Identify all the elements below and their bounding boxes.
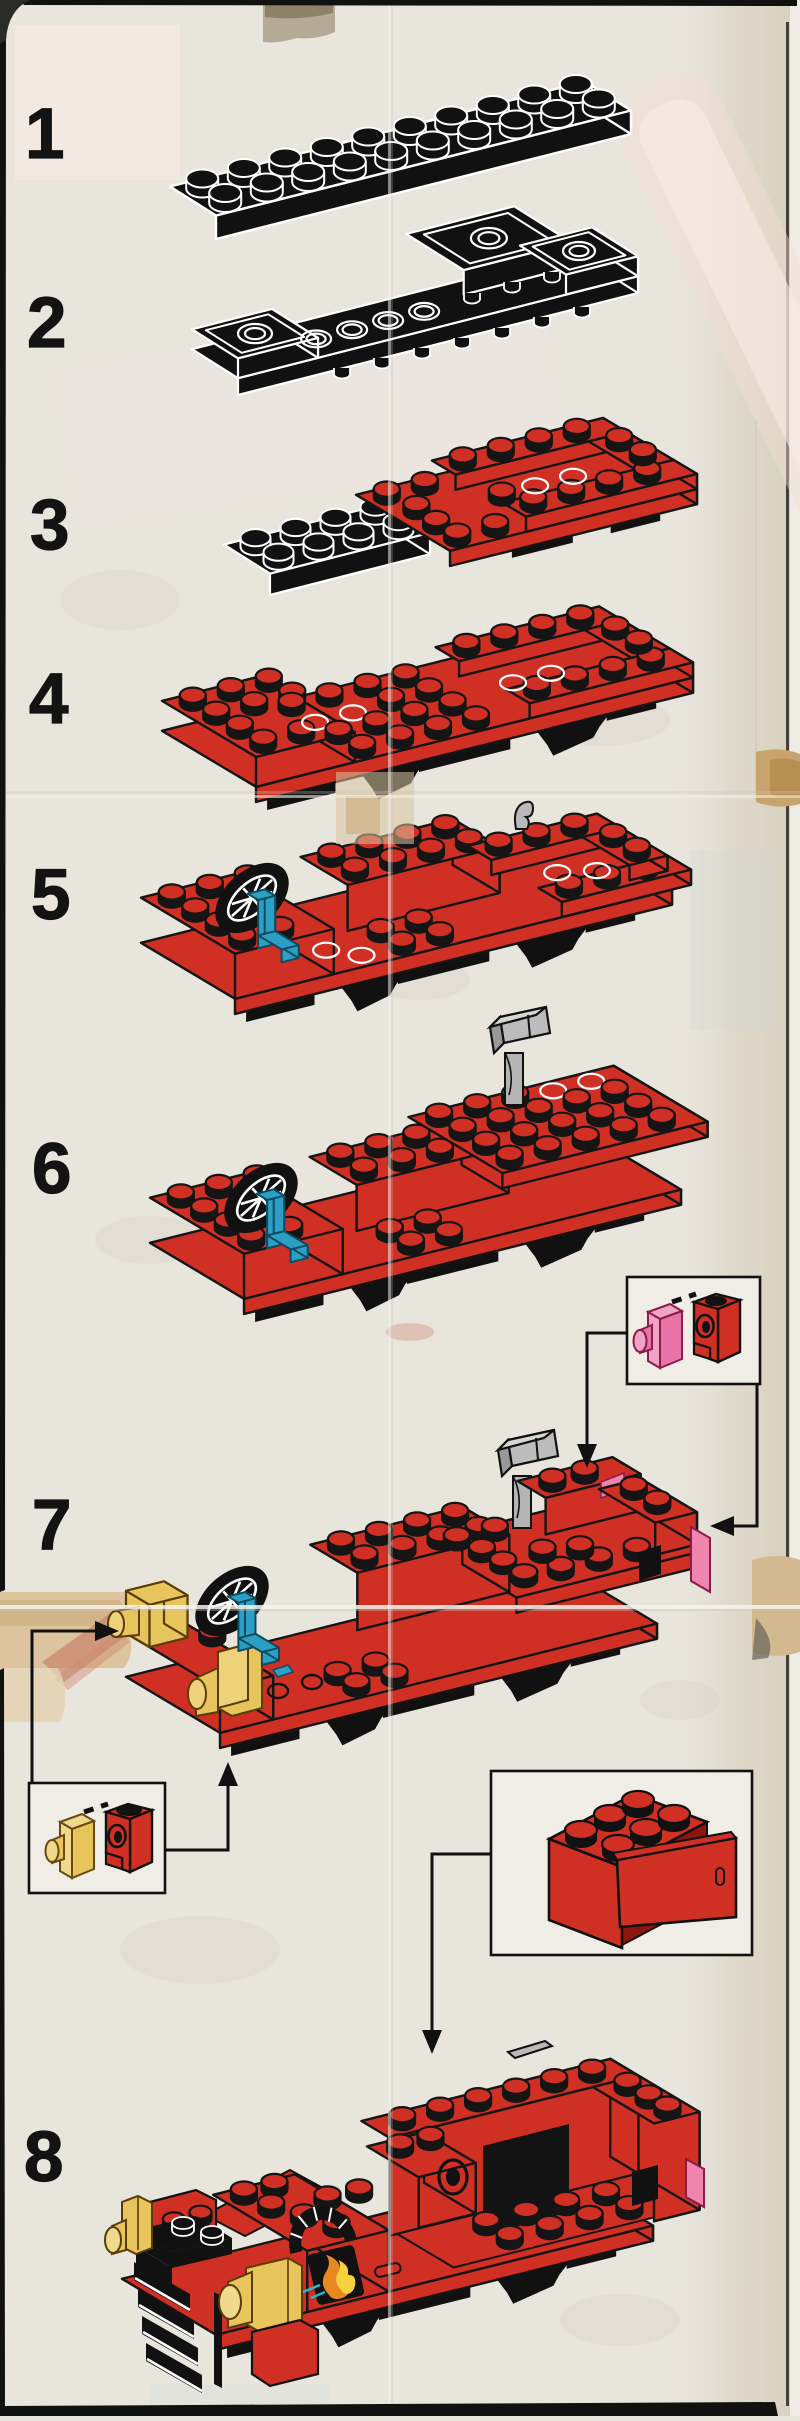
svg-text:4: 4 <box>29 660 69 739</box>
svg-text:6: 6 <box>32 1130 72 1209</box>
svg-text:3: 3 <box>30 486 70 565</box>
svg-text:5: 5 <box>31 856 71 935</box>
svg-text:7: 7 <box>32 1486 72 1565</box>
svg-text:8: 8 <box>24 2118 64 2197</box>
svg-text:2: 2 <box>27 284 67 363</box>
svg-text:1: 1 <box>25 95 65 174</box>
